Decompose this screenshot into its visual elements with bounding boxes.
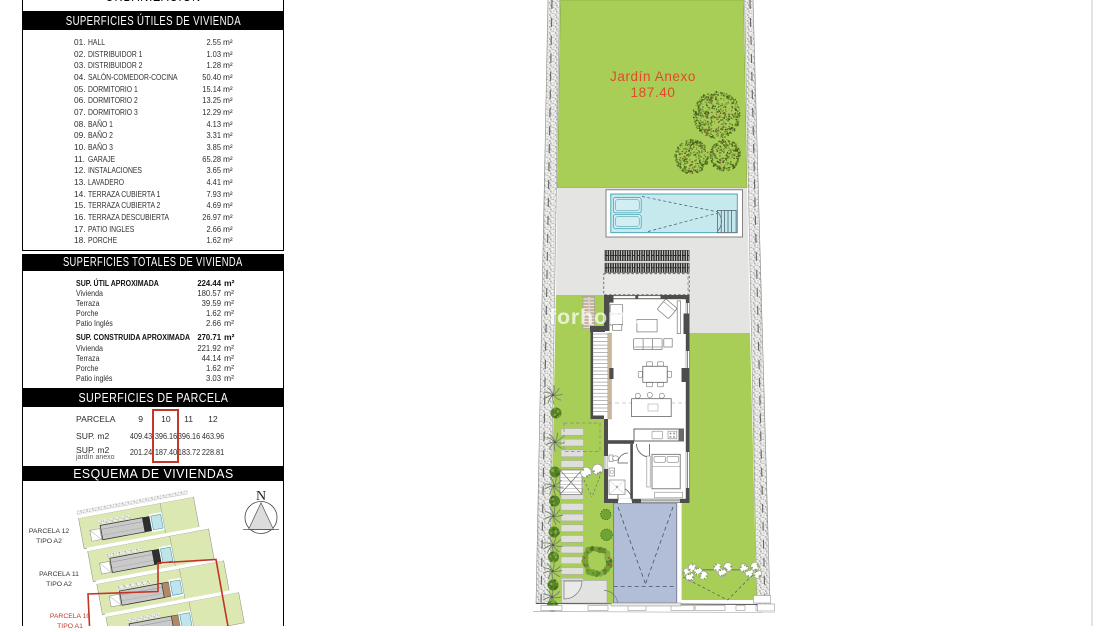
svg-text:Jardín Anexo: Jardín Anexo xyxy=(610,69,696,84)
svg-text:187.40: 187.40 xyxy=(631,85,676,100)
svg-text:forhome: forhome xyxy=(549,305,641,329)
